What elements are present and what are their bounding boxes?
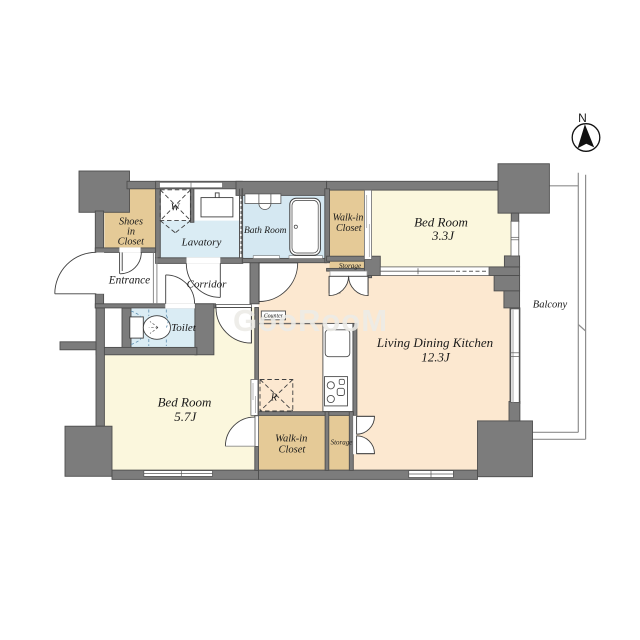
svg-text:GooRooM: GooRooM: [233, 303, 388, 338]
svg-text:Toilet: Toilet: [171, 322, 197, 334]
svg-text:N: N: [578, 111, 587, 125]
svg-text:Entrance: Entrance: [108, 274, 150, 286]
svg-text:Closet: Closet: [336, 223, 362, 234]
svg-text:Closet: Closet: [278, 445, 306, 456]
svg-text:Corridor: Corridor: [187, 279, 227, 291]
svg-text:12.3J: 12.3J: [421, 349, 451, 364]
svg-text:Walk-in: Walk-in: [275, 434, 307, 445]
svg-text:Storage: Storage: [339, 262, 362, 270]
svg-text:Bed Room: Bed Room: [158, 395, 212, 410]
svg-text:Storage: Storage: [331, 438, 353, 446]
svg-text:Counter: Counter: [264, 314, 284, 320]
svg-text:Balcony: Balcony: [533, 300, 568, 311]
svg-text:Bath Room: Bath Room: [244, 226, 287, 236]
svg-text:Walk-in: Walk-in: [333, 213, 364, 224]
svg-text:5.7J: 5.7J: [174, 409, 197, 424]
svg-text:Closet: Closet: [118, 236, 145, 247]
svg-text:W: W: [171, 203, 181, 214]
svg-text:Lavatory: Lavatory: [181, 237, 222, 249]
svg-text:3.3J: 3.3J: [431, 228, 455, 243]
svg-text:R: R: [270, 393, 278, 404]
svg-text:Living Dining Kitchen: Living Dining Kitchen: [376, 335, 493, 350]
